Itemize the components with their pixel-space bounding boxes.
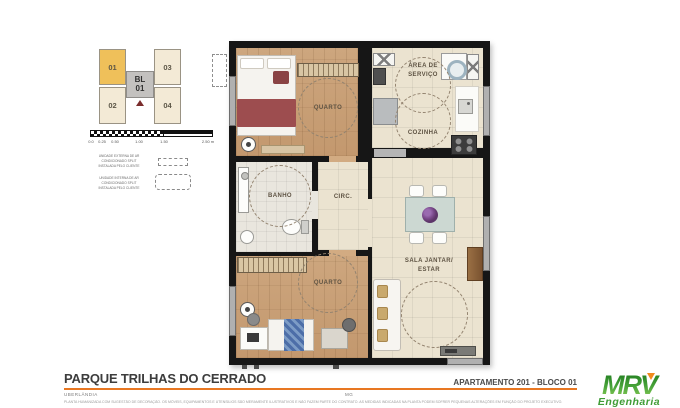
site-key-unit-02: 02 — [99, 87, 126, 124]
city-label: UBERLÂNDIA — [64, 392, 98, 397]
service-area-label: ÁREA DE SERVIÇO — [395, 62, 451, 80]
sideboard — [467, 247, 483, 281]
kitchen-sink — [458, 99, 473, 114]
laundry-tank — [373, 53, 395, 66]
legend-item-internal-ac: UNIDADE INTERNA DE AR CONDICIONADO SPLIT… — [93, 176, 145, 190]
bedroom1-door-opening — [329, 156, 356, 162]
legend-item-external-ac: UNIDADE EXTERNA DE AR CONDICIONADO SPLIT… — [93, 154, 145, 168]
north-arrow-icon — [136, 100, 144, 106]
mrv-logo-orange-wedge-icon — [647, 373, 655, 380]
shower — [238, 167, 249, 213]
tv-rack — [440, 346, 476, 356]
sofa-pillow — [377, 285, 388, 298]
accessibility-circle: QUARTO — [298, 253, 358, 313]
accessibility-circle: QUARTO — [298, 78, 358, 138]
scale-tick: 1.00 — [135, 139, 143, 144]
hall-living-opening — [368, 199, 372, 247]
dining-chair — [432, 185, 447, 197]
floorplan-sheet: 01 03 02 04 BL 01 0.0 0.25 0.50 1.00 1.5… — [0, 0, 680, 408]
bedroom1-window — [229, 76, 236, 126]
fan-icon — [241, 137, 256, 152]
laundry-sink — [467, 54, 479, 80]
utility-mark — [254, 365, 259, 369]
water-heater — [373, 68, 386, 85]
apartment-label: APARTAMENTO 201 - BLOCO 01 — [420, 378, 577, 387]
wardrobe — [297, 63, 359, 77]
unit-label: 03 — [163, 63, 171, 72]
bed-cushion — [273, 71, 289, 84]
sofa-pillow — [377, 307, 388, 320]
flower-centerpiece — [422, 207, 438, 223]
site-key-block-label: BL 01 — [126, 71, 154, 98]
living-window — [483, 216, 490, 271]
mrv-logo-brand: MRV — [581, 372, 677, 399]
scale-bar-checker — [90, 130, 164, 137]
pillow — [240, 58, 264, 69]
pillow — [267, 58, 291, 69]
utility-mark — [242, 365, 247, 369]
mrv-logo-subtitle: Engenharia — [581, 397, 677, 408]
apartment-floor-plan: QUARTO ÁREA DE SERVIÇO COZINHA BANHO CIR… — [229, 41, 490, 365]
site-key-unit-01: 01 — [99, 49, 126, 85]
dining-chair — [432, 232, 447, 244]
toilet-tank — [301, 220, 309, 234]
dining-chair — [409, 232, 424, 244]
scale-tick: 2.50 m — [202, 139, 214, 144]
bed-blanket — [237, 99, 296, 127]
bathroom-sink — [240, 230, 254, 244]
living-label: SALA JANTAR/ ESTAR — [389, 257, 469, 275]
site-key-unit-03: 03 — [154, 49, 181, 85]
unit-label: 04 — [163, 101, 171, 110]
stove — [451, 135, 477, 155]
project-title: PARQUE TRILHAS DO CERRADO — [64, 371, 266, 386]
divider-rule — [64, 388, 577, 390]
utility-mark — [333, 365, 339, 369]
kitchen-window — [483, 86, 490, 136]
pouf — [342, 318, 356, 332]
scale-tick: 0.0 — [88, 139, 94, 144]
legend-symbol-internal-ac — [155, 174, 191, 190]
unit-label: 01 — [108, 63, 116, 72]
kitchen-label: COZINHA — [395, 129, 451, 138]
dining-chair — [409, 185, 424, 197]
ac-condenser-outline — [212, 54, 227, 87]
bathroom-label: BANHO — [268, 192, 292, 201]
accessibility-circle — [401, 281, 468, 348]
bedroom1-label: QUARTO — [314, 104, 342, 113]
bench — [261, 145, 305, 154]
scale-tick: 0.50 — [111, 139, 119, 144]
scale-tick: 0.25 — [98, 139, 106, 144]
site-key-unit-04: 04 — [154, 87, 181, 124]
entry-door — [447, 358, 483, 365]
side-table — [321, 328, 348, 349]
hall-floor — [318, 162, 368, 250]
hall-label: CIRC. — [321, 193, 365, 202]
bed-blanket-blue — [284, 319, 304, 351]
accessibility-circle: BANHO — [249, 165, 311, 227]
disclaimer-text: PLANTA HUMANIZADA COM SUGESTÃO DE DECORA… — [64, 400, 579, 404]
state-label: MG — [345, 392, 353, 397]
unit-label: 02 — [108, 101, 116, 110]
accessibility-circle — [395, 93, 451, 149]
kitchen-pass-through — [374, 149, 406, 157]
scale-tick: 1.50 — [160, 139, 168, 144]
bathroom-door-opening — [312, 191, 318, 219]
bedroom2-window — [229, 286, 236, 336]
bedroom2-label: QUARTO — [314, 279, 342, 288]
scale-bar-solid — [164, 130, 213, 137]
wardrobe — [237, 257, 307, 273]
laptop — [247, 333, 259, 342]
mrv-logo: MRV Engenharia — [581, 372, 677, 408]
legend-symbol-external-ac — [158, 158, 188, 166]
desk-chair — [247, 313, 260, 326]
sofa-pillow — [377, 329, 388, 342]
